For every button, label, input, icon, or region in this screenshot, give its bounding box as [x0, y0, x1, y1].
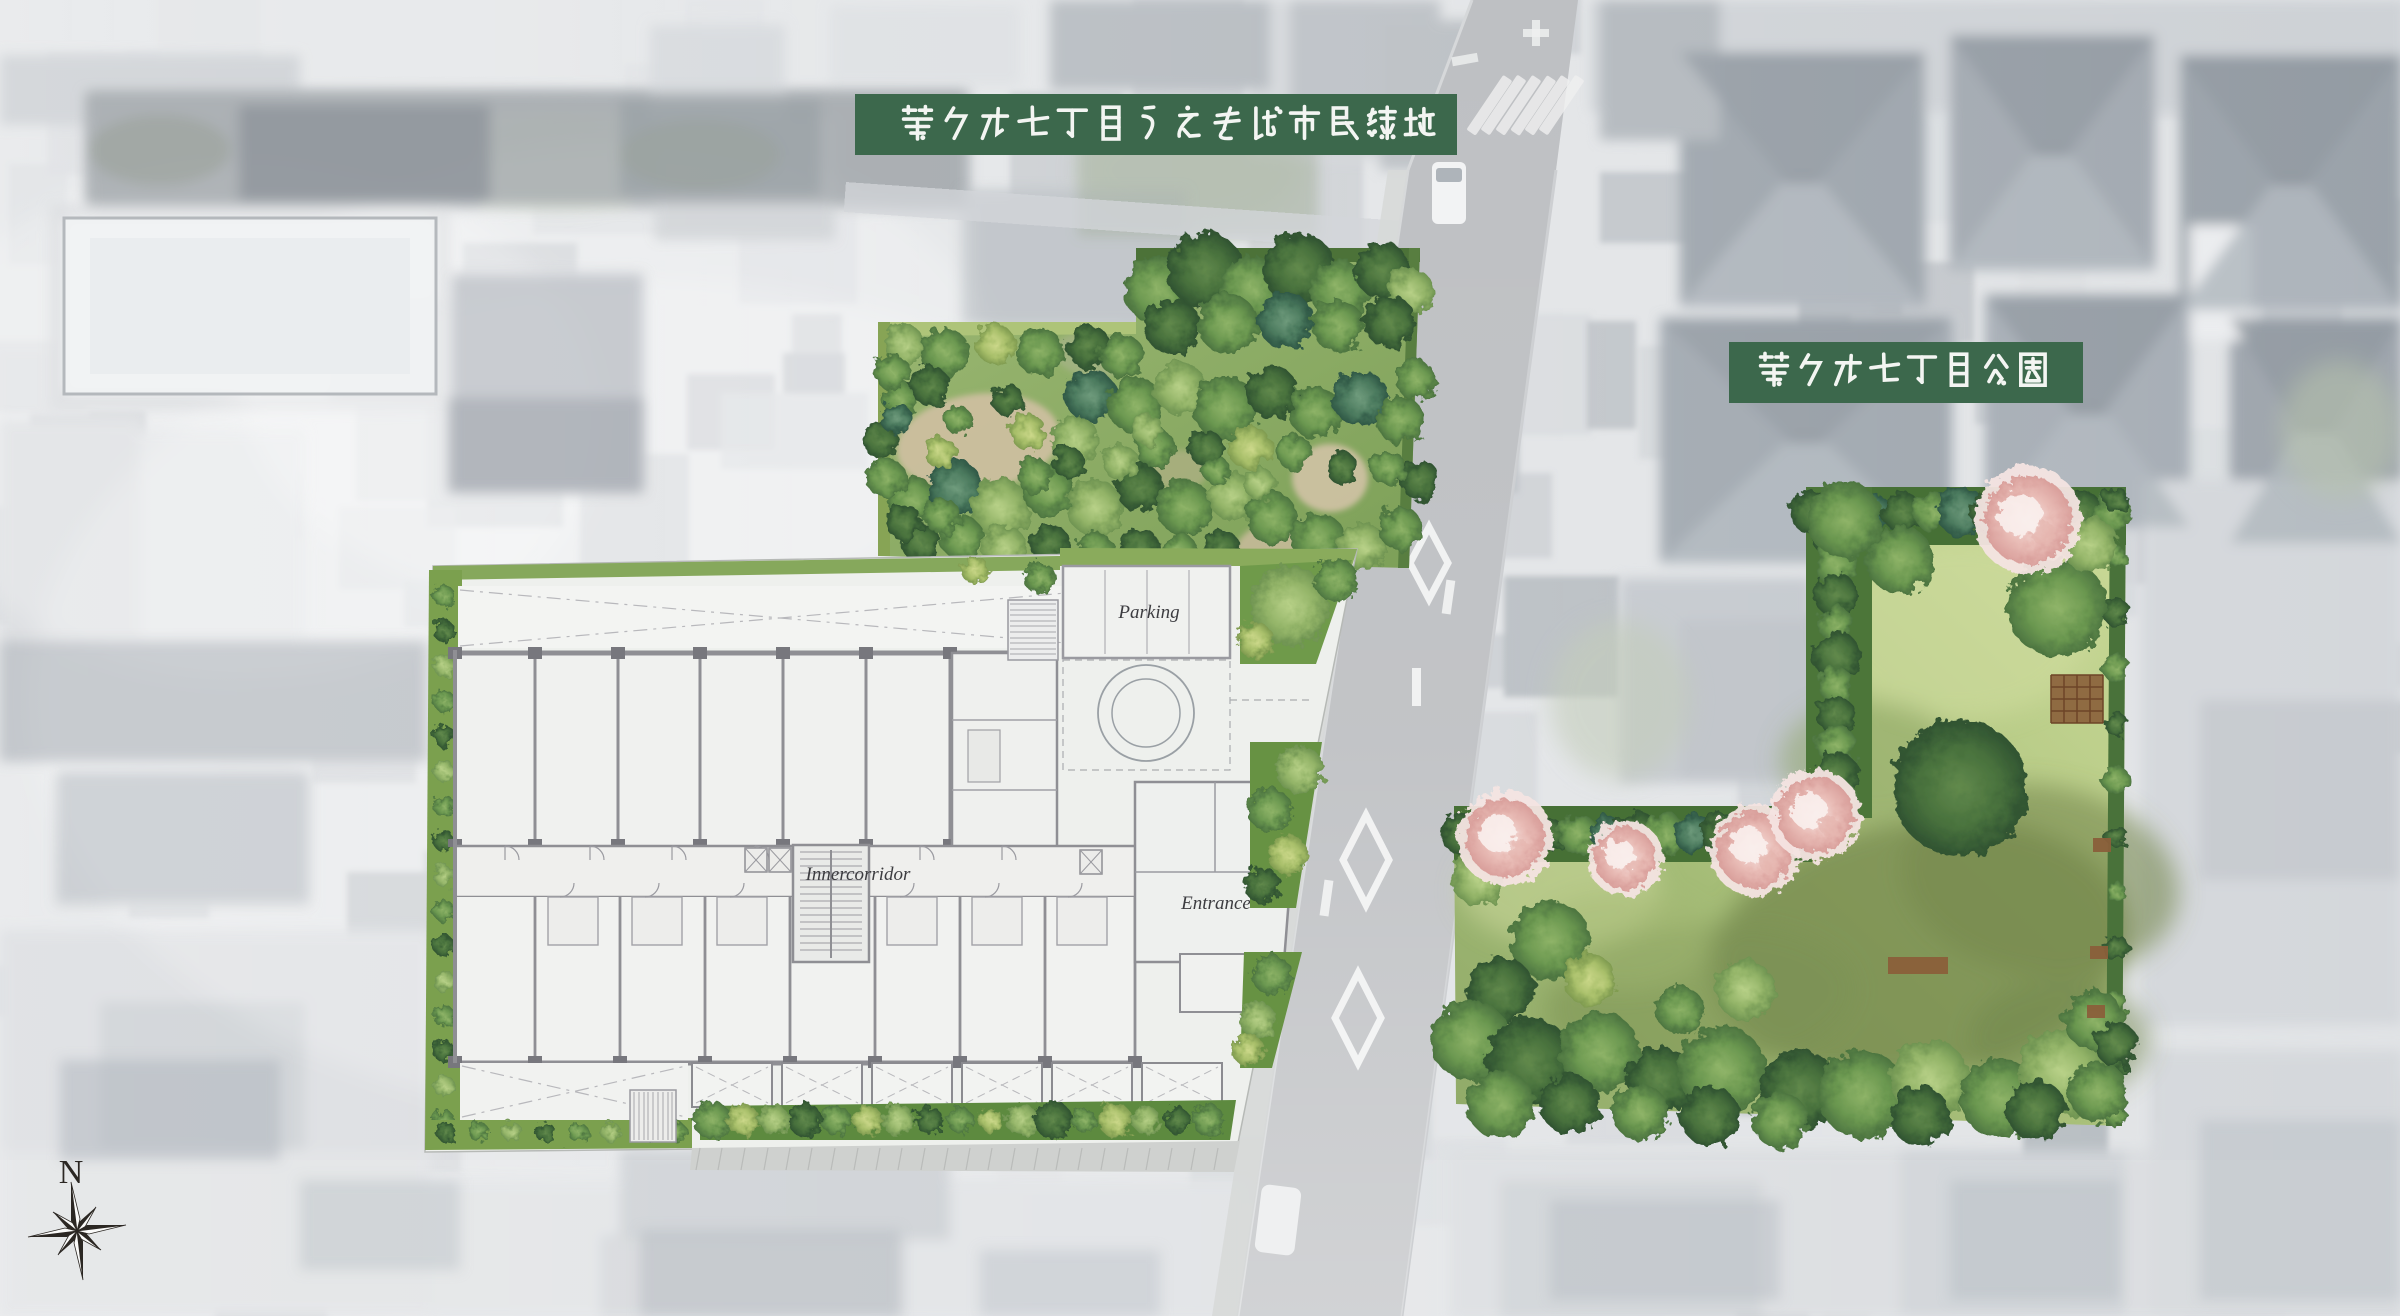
svg-text:Parking: Parking [1117, 602, 1179, 623]
svg-text:N: N [59, 1154, 84, 1191]
svg-text:Innercorridor: Innercorridor [805, 864, 911, 885]
svg-text:Entrance: Entrance [1180, 893, 1251, 914]
